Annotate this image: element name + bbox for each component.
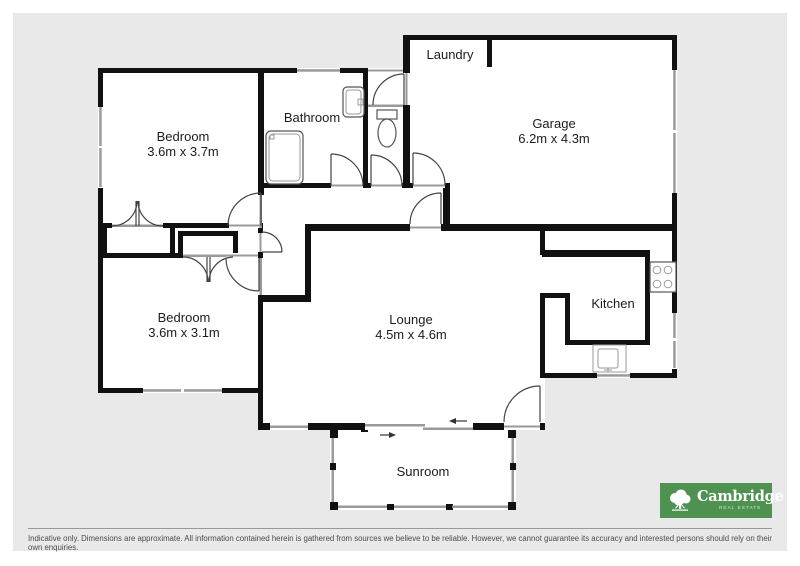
room-label-laundry: Laundry — [427, 47, 474, 62]
room-label-kitchen: Kitchen — [591, 296, 634, 311]
logo-wordmark: Cambridge Real Estate — [697, 490, 783, 510]
logo-brand-text: Cambridge — [697, 490, 783, 505]
tree-icon — [667, 488, 693, 514]
sliding-door — [365, 423, 473, 430]
floor-plan: Bedroom 3.6m x 3.7m Bathroom Laundry Gar… — [0, 0, 800, 566]
floor-plan-page: Bedroom 3.6m x 3.7m Bathroom Laundry Gar… — [0, 0, 800, 566]
room-dims-bedroom1: 3.6m x 3.7m — [147, 144, 219, 159]
toilet-icon — [377, 110, 397, 147]
logo-tagline-text: Real Estate — [719, 506, 761, 511]
room-label-bathroom: Bathroom — [284, 110, 340, 125]
basin-icon — [343, 87, 364, 117]
cooktop-icon — [650, 262, 676, 292]
shower-icon — [266, 131, 303, 184]
garage-door — [672, 70, 677, 193]
room-label-garage: Garage — [532, 116, 575, 131]
room-label-bedroom2: Bedroom — [158, 310, 211, 325]
room-dims-bedroom2: 3.6m x 3.1m — [148, 325, 220, 340]
room-label-lounge: Lounge — [389, 312, 432, 327]
footer-divider — [28, 528, 772, 529]
room-label-bedroom1: Bedroom — [157, 129, 210, 144]
room-label-sunroom: Sunroom — [397, 464, 450, 479]
room-dims-garage: 6.2m x 4.3m — [518, 131, 590, 146]
agency-logo: Cambridge Real Estate — [660, 483, 772, 518]
room-dims-lounge: 4.5m x 4.6m — [375, 327, 447, 342]
disclaimer-text: Indicative only. Dimensions are approxim… — [28, 534, 778, 552]
